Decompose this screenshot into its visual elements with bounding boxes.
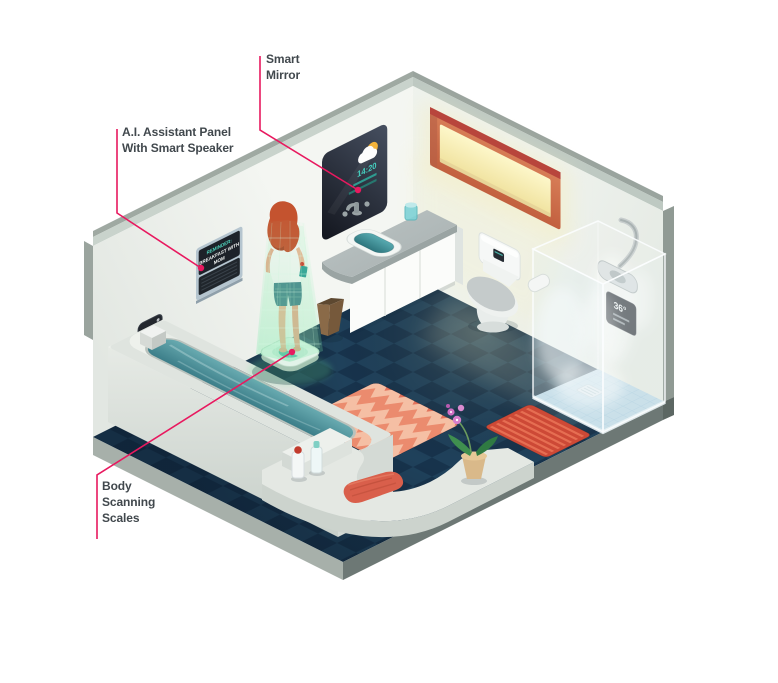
callout-label-ai-panel: A.I. Assistant Panel With Smart Speaker: [122, 124, 252, 156]
trash-can: [317, 298, 344, 343]
isometric-bathroom-scene: 14:20 REMINDER: BREAKFAST WITH MOM 36°: [0, 0, 778, 683]
smart-bathroom-illustration: 14:20 REMINDER: BREAKFAST WITH MOM 36°: [0, 0, 778, 683]
shower: 36°: [526, 220, 665, 432]
glass-cup: [405, 202, 417, 220]
callout-label-body-scales: Body Scanning Scales: [102, 478, 170, 526]
callout-label-smart-mirror: Smart Mirror: [266, 51, 314, 83]
